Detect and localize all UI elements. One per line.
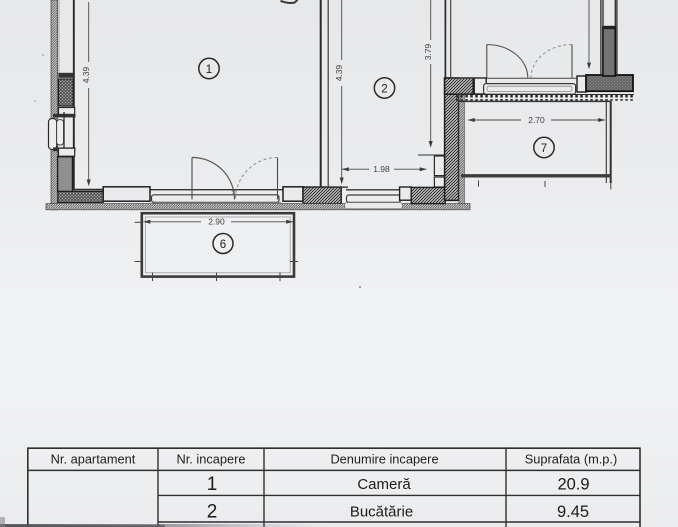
svg-text:3.79: 3.79 [423, 44, 433, 61]
svg-text:7: 7 [541, 143, 547, 155]
svg-text:6: 6 [220, 239, 226, 251]
svg-text:1: 1 [206, 64, 212, 76]
svg-text:2.70: 2.70 [528, 115, 545, 125]
svg-text:2: 2 [381, 84, 387, 96]
svg-text:4.39: 4.39 [81, 67, 91, 84]
svg-text:9.45: 9.45 [557, 503, 589, 521]
svg-text:Cameră: Cameră [357, 476, 411, 493]
svg-text:Nr. incapere: Nr. incapere [177, 451, 246, 466]
svg-text:Nr. apartament: Nr. apartament [51, 451, 136, 466]
svg-text:Suprafata (m.p.): Suprafata (m.p.) [525, 451, 617, 466]
svg-text:1: 1 [207, 474, 218, 495]
svg-text:Denumire incapere: Denumire incapere [330, 451, 438, 466]
svg-text:1.98: 1.98 [373, 164, 390, 174]
svg-text:2: 2 [207, 501, 218, 522]
svg-text:2.90: 2.90 [208, 217, 225, 227]
svg-text:4.39: 4.39 [334, 65, 344, 82]
svg-text:Bucătărie: Bucătărie [350, 503, 413, 520]
svg-text:20.9: 20.9 [557, 475, 589, 493]
